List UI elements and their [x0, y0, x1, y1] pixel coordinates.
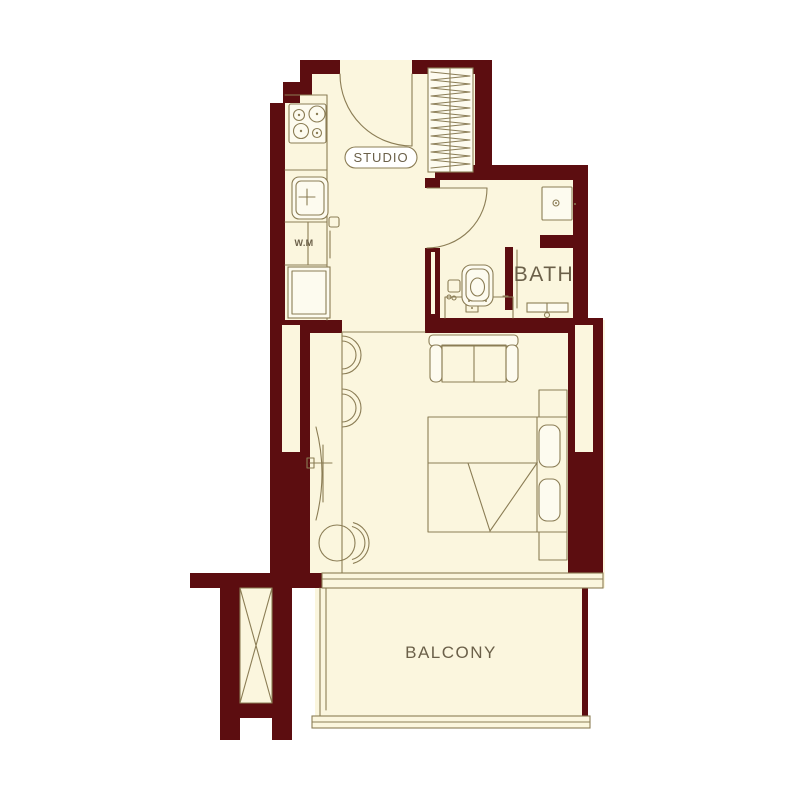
wall-closet-right	[475, 60, 492, 180]
floor-plan-page: W.M	[0, 0, 800, 800]
window-band	[322, 573, 603, 588]
wall-column-left	[220, 588, 240, 740]
kitchen-sink	[292, 177, 328, 219]
pillow-bottom	[539, 479, 560, 521]
window-niche-left	[282, 325, 300, 452]
wall-top-left	[300, 60, 340, 74]
shower	[542, 187, 576, 220]
studio-label-pill: STUDIO	[345, 147, 417, 168]
washing-machine-label: W.M	[295, 238, 314, 248]
balcony-label: BALCONY	[405, 643, 497, 662]
bath-label: BATH	[514, 263, 574, 286]
wall-column-right	[272, 588, 292, 740]
wall-step	[283, 82, 300, 103]
wardrobe-closet	[428, 68, 473, 172]
wall-balcony-right	[582, 588, 588, 716]
sofa-arm-left	[430, 345, 442, 382]
window-niche-right	[575, 325, 593, 452]
fridge	[288, 267, 330, 318]
washing-machine: W.M	[295, 238, 314, 248]
wall-kitchen-left	[270, 103, 285, 333]
wall-bedroom-top-stub	[310, 320, 342, 333]
wall-column-bar	[190, 573, 322, 588]
stove	[289, 104, 326, 143]
wall-top-left-corner	[300, 74, 312, 95]
sofa-back	[429, 335, 518, 346]
wall-bath-partition	[505, 247, 513, 310]
pillow-top	[539, 425, 560, 467]
studio-label: STUDIO	[353, 150, 408, 165]
sofa-arm-right	[506, 345, 518, 382]
duct-niche-bath	[431, 252, 435, 314]
wall-bath-left-stub	[425, 178, 440, 188]
floor-plan: W.M	[0, 0, 800, 800]
wall-column-bottom	[240, 703, 272, 718]
wall-shower-divider	[540, 235, 588, 248]
